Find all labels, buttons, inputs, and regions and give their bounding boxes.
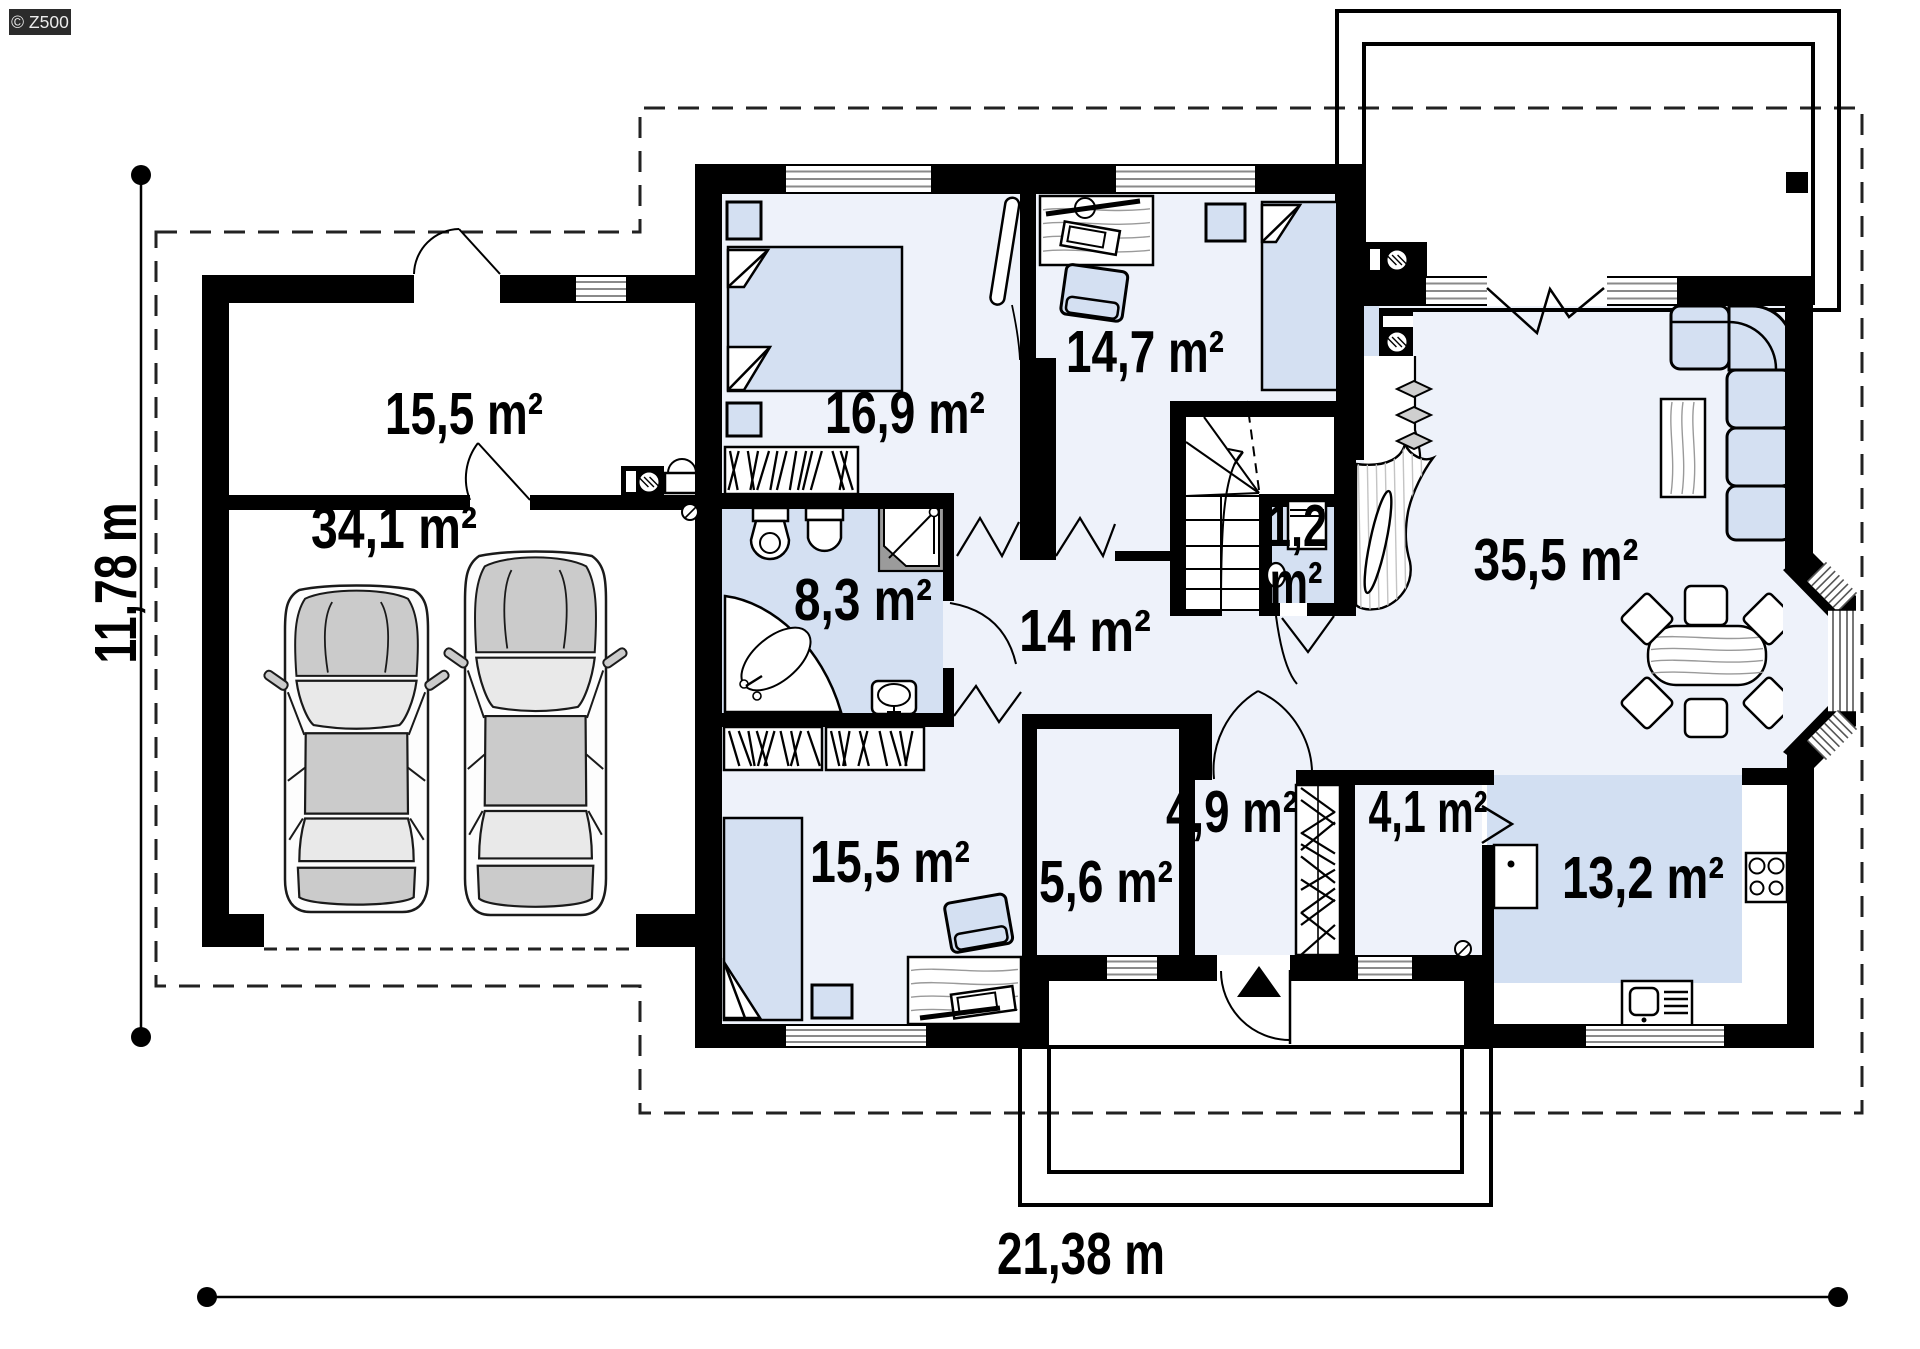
svg-text:15,5 m²: 15,5 m² bbox=[810, 829, 970, 895]
svg-text:4,1 m²: 4,1 m² bbox=[1369, 779, 1488, 845]
svg-text:34,1 m²: 34,1 m² bbox=[311, 495, 477, 561]
svg-text:21,38 m: 21,38 m bbox=[997, 1221, 1165, 1287]
svg-text:35,5 m²: 35,5 m² bbox=[1474, 527, 1639, 593]
svg-text:14,7 m²: 14,7 m² bbox=[1066, 319, 1224, 385]
svg-text:13,2 m²: 13,2 m² bbox=[1562, 845, 1724, 911]
svg-text:11,78 m: 11,78 m bbox=[83, 503, 149, 664]
svg-text:5,6 m²: 5,6 m² bbox=[1039, 849, 1173, 915]
svg-text:15,5 m²: 15,5 m² bbox=[385, 381, 543, 447]
svg-text:14 m²: 14 m² bbox=[1019, 598, 1151, 664]
svg-text:8,3 m²: 8,3 m² bbox=[794, 567, 932, 633]
svg-text:m²: m² bbox=[1270, 550, 1323, 616]
svg-text:© Z500: © Z500 bbox=[11, 12, 69, 32]
svg-text:16,9 m²: 16,9 m² bbox=[825, 380, 985, 446]
svg-text:4,9 m²: 4,9 m² bbox=[1166, 779, 1298, 845]
